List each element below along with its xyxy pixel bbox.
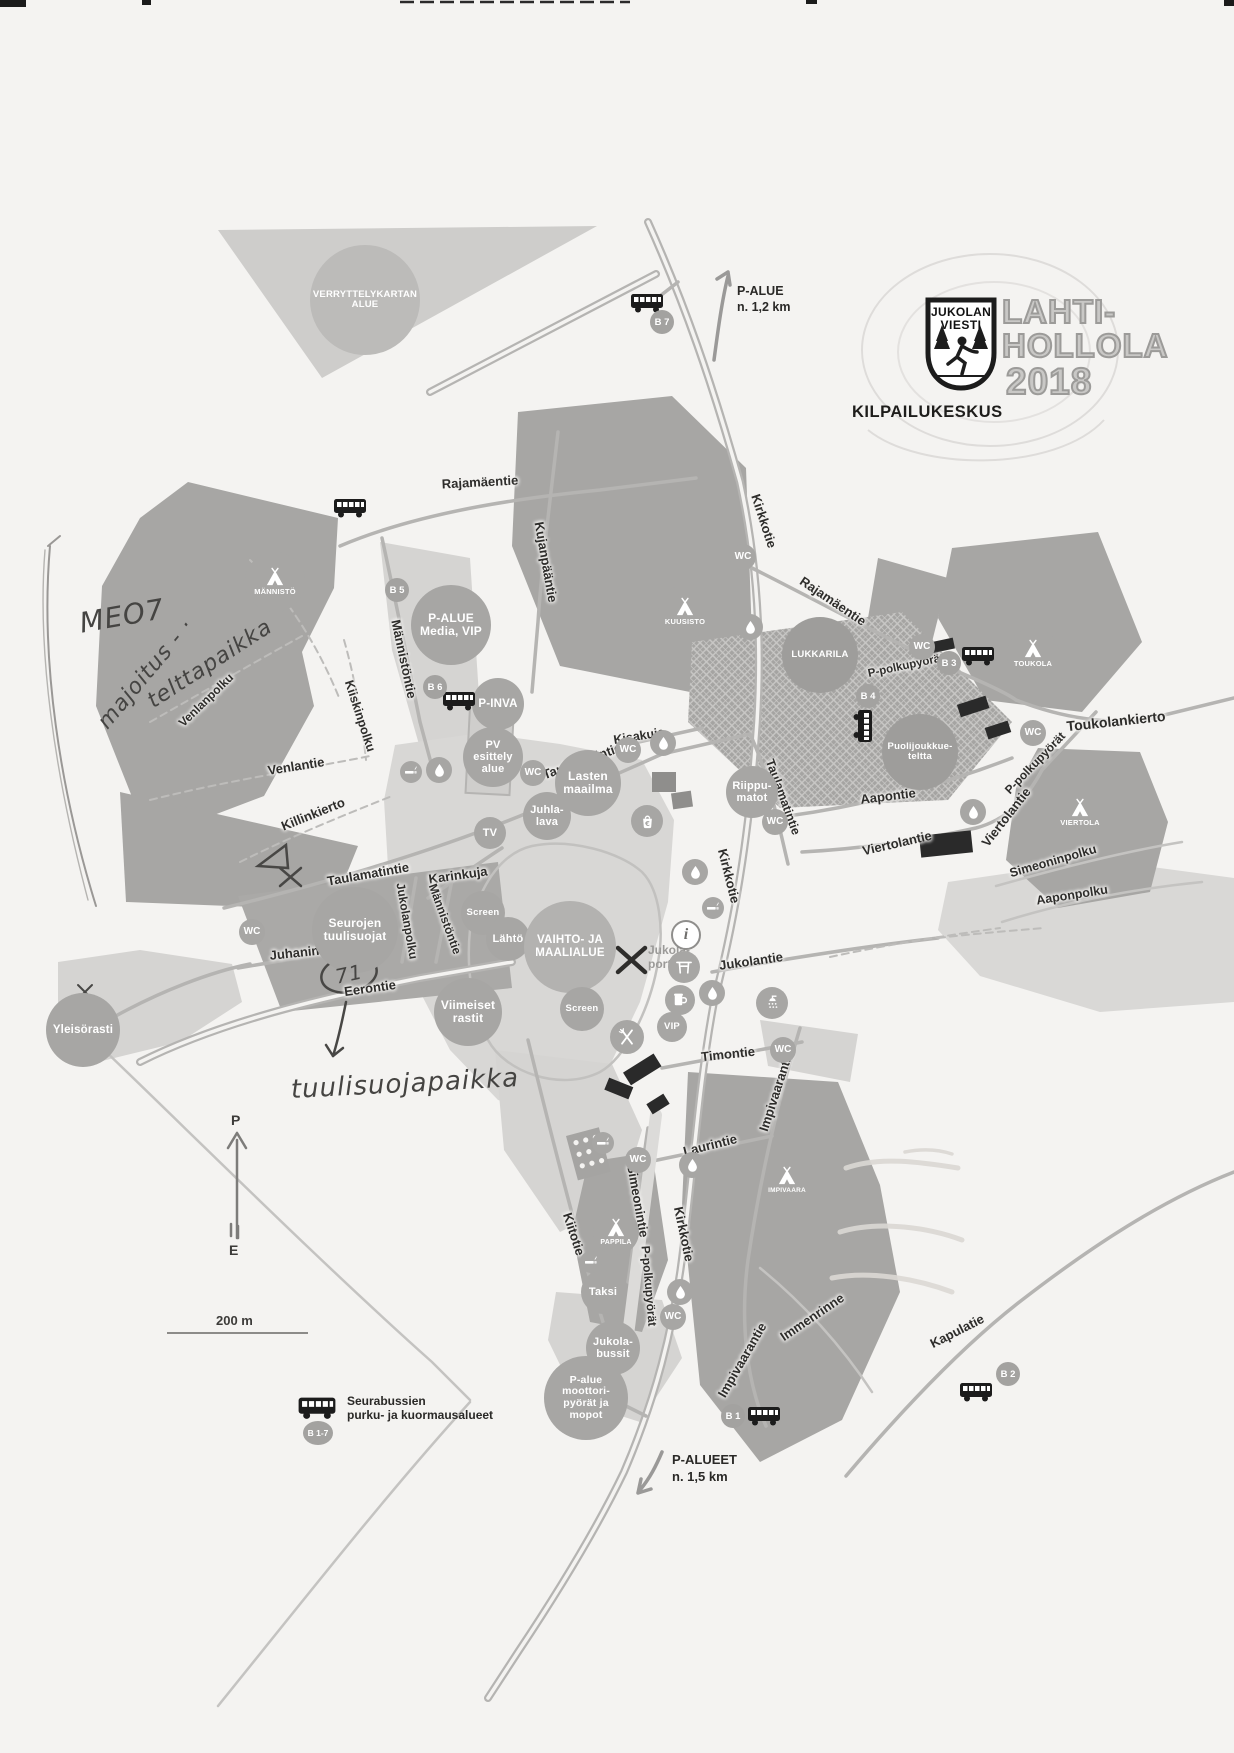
logo-event-line1: LAHTI- xyxy=(1002,296,1116,327)
map-circle-p-alue-media-vip: P-ALUEMedia, VIP xyxy=(411,585,491,665)
wc-icon: WC xyxy=(730,544,756,570)
map-circle-pappila: PAPPILA xyxy=(593,1209,639,1255)
compass-north-label: P xyxy=(231,1112,240,1128)
map-base-graphics xyxy=(0,0,1234,1753)
logo-event-line2: HOLLOLA xyxy=(1002,330,1168,361)
wc-icon: WC xyxy=(520,760,546,786)
compass-south-label: E xyxy=(229,1242,238,1258)
bus-stop-badge-b-5: B 5 xyxy=(385,578,409,602)
map-circle-p-inva: P-INVA xyxy=(472,678,524,730)
tent-icon xyxy=(1022,639,1044,659)
drinking-water-icon xyxy=(667,1279,693,1305)
food-service-icon xyxy=(610,1020,644,1054)
shower-icon xyxy=(756,987,788,1019)
bus-stop-badge-b-4: B 4 xyxy=(856,684,880,708)
drinking-water-icon xyxy=(682,859,708,885)
smoking-area-icon xyxy=(580,1251,602,1273)
map-circle-screen: Screen xyxy=(560,987,604,1031)
bus-stop-badge-b-3: B 3 xyxy=(937,651,961,675)
smoking-area-icon xyxy=(702,897,724,919)
scan-marks xyxy=(0,0,1234,7)
svg-text:€: € xyxy=(644,819,650,827)
smoking-area-icon xyxy=(400,761,422,783)
drinking-water-icon xyxy=(699,980,725,1006)
map-circle-vip: VIP xyxy=(657,1012,687,1042)
scalebar-label: 200 m xyxy=(216,1313,253,1328)
map-circle-juhla-lava: Juhla-lava xyxy=(523,792,571,840)
bus-stop-icon-b-3 xyxy=(961,645,995,667)
bus-stop-icon-b-6 xyxy=(442,690,476,712)
map-circle-toukola: TOUKOLA xyxy=(1007,628,1059,680)
map-circle-viimeiset-rastit: Viimeisetrastit xyxy=(434,978,502,1046)
bus-stop-icon-b-2 xyxy=(959,1381,993,1403)
logo-event-year: 2018 xyxy=(1006,364,1092,399)
jukola-portti-gate-icon xyxy=(668,951,700,983)
map-circle-taksi: Taksi xyxy=(581,1270,625,1314)
wc-icon: WC xyxy=(770,1037,796,1063)
bus-stop-badge-b-6: B 6 xyxy=(423,675,447,699)
drinking-water-icon xyxy=(960,799,986,825)
wc-icon: WC xyxy=(660,1304,686,1330)
map-title: KILPAILUKESKUS xyxy=(852,403,1003,422)
map-circle-vaihto-ja-maalialue: VAIHTO- JAMAALIALUE xyxy=(524,901,616,993)
logo-shield-line2: VIESTI xyxy=(931,318,991,332)
parking-arrow-bottom-line2: n. 1,5 km xyxy=(672,1469,728,1485)
legend-bus-icon xyxy=(297,1395,336,1420)
competition-center-map: JUKOLAN VIESTI LAHTI- HOLLOLA 2018 KILPA… xyxy=(0,0,1234,1753)
drinking-water-icon xyxy=(679,1152,705,1178)
drinking-water-icon xyxy=(426,757,452,783)
bus-stop-badge-b-2: B 2 xyxy=(996,1362,1020,1386)
tent-icon xyxy=(605,1218,627,1238)
map-circle-tv: TV xyxy=(474,817,506,849)
legend-bus-badge: B 1-7 xyxy=(303,1421,333,1445)
wc-icon: WC xyxy=(909,634,935,660)
map-circle-p-alue-moottori-pyörät-ja-mopot: P-aluemoottori-pyörät jamopot xyxy=(544,1356,628,1440)
map-circle-viertola: VIERTOLA xyxy=(1053,786,1107,840)
parking-arrow-bottom-line1: P-ALUEET xyxy=(672,1452,737,1468)
map-circle-verryttelykartan-alue: VERRYTTELYKARTANALUE xyxy=(310,245,420,355)
tent-icon xyxy=(1069,798,1091,818)
drinking-water-icon xyxy=(650,730,676,756)
map-circle-männistö: MÄNNISTÖ xyxy=(245,552,305,612)
wc-icon: WC xyxy=(625,1147,651,1173)
bus-stop-icon-b-1 xyxy=(747,1405,781,1427)
legend-line1: Seurabussien xyxy=(347,1394,426,1409)
tent-icon xyxy=(674,597,696,617)
shop-euro-icon: € xyxy=(631,805,663,837)
bus-stop-badge-b-7: B 7 xyxy=(650,310,674,334)
wc-icon: WC xyxy=(1020,720,1046,746)
parking-arrow-top-line1: P-ALUE xyxy=(737,284,784,300)
wc-icon: WC xyxy=(762,809,788,835)
bus-stop-icon-b-5 xyxy=(333,497,367,519)
map-circle-kuusisto: KUUSISTO xyxy=(658,585,712,639)
beer-restaurant-icon xyxy=(665,985,695,1015)
logo-shield-line1: JUKOLAN xyxy=(931,305,991,319)
map-circle-puolijoukkue-teltta: Puolijoukkue-teltta xyxy=(882,714,958,790)
legend-line2: purku- ja kuormausalueet xyxy=(347,1408,493,1423)
map-circle-impivaara: IMPIVAARA xyxy=(766,1159,808,1201)
info-icon: i xyxy=(671,920,701,950)
wc-icon: WC xyxy=(615,737,641,763)
bus-stop-badge-b-1: B 1 xyxy=(721,1404,745,1428)
map-circle-yleisörasti: Yleisörasti xyxy=(46,993,120,1067)
tent-icon xyxy=(776,1166,798,1186)
smoking-area-icon xyxy=(592,1132,614,1154)
map-circle-pv-esittely-alue: PVesittelyalue xyxy=(463,727,523,787)
parking-arrow-top-line2: n. 1,2 km xyxy=(737,300,791,316)
wc-icon: WC xyxy=(239,919,265,945)
bus-stop-icon-b-4 xyxy=(852,709,874,743)
drinking-water-icon xyxy=(737,614,763,640)
map-circle-lukkarila: LUKKARILA xyxy=(782,617,858,693)
tent-icon xyxy=(264,567,286,587)
